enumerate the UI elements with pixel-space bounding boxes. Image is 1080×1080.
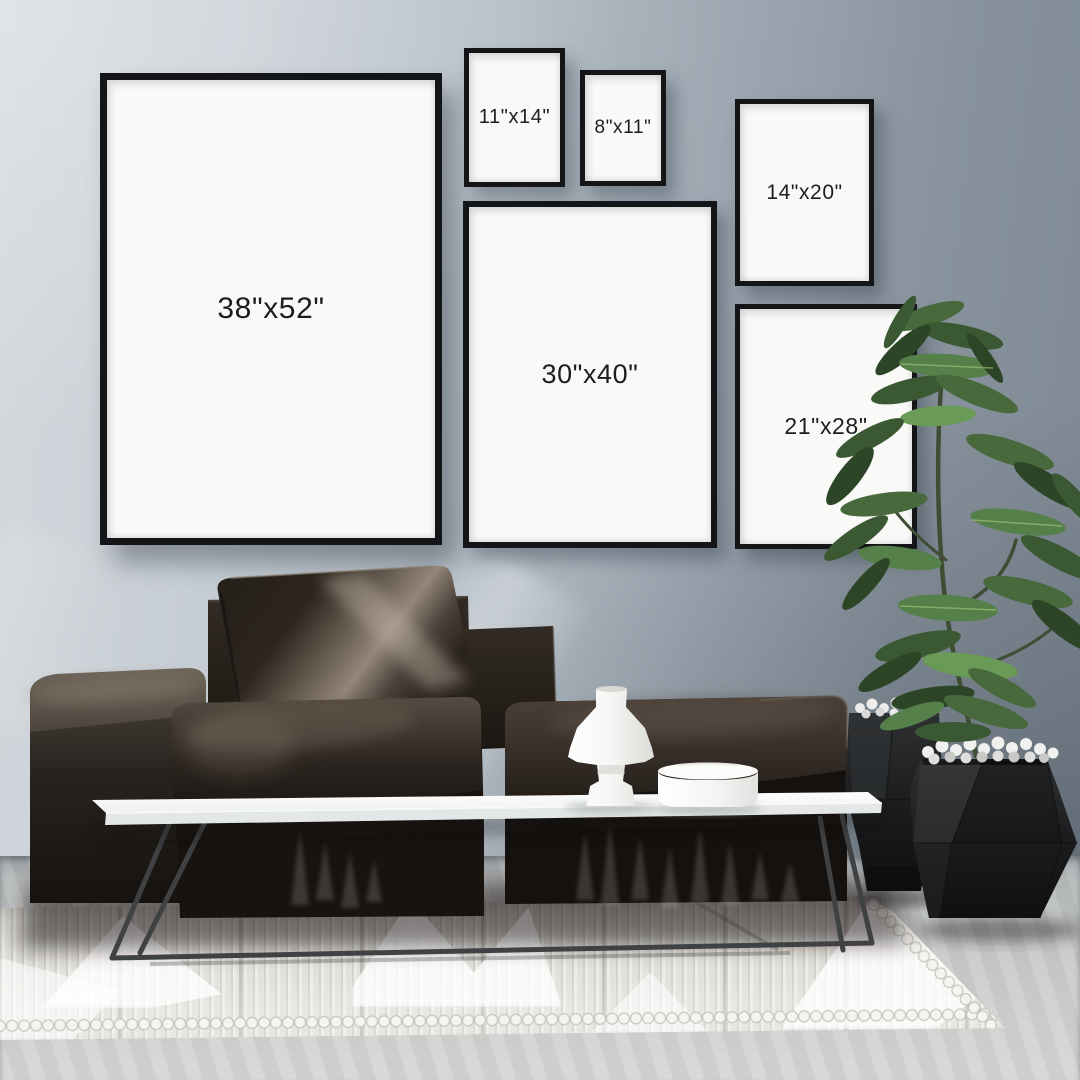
frame-paper: 8"x11" [585, 75, 661, 181]
frame-size-label: 21"x28" [784, 413, 867, 440]
frame-paper: 21"x28" [740, 309, 912, 544]
frame-14x20: 14"x20" [735, 99, 874, 286]
frame-size-label: 14"x20" [766, 181, 842, 205]
frame-size-label: 38"x52" [217, 292, 324, 326]
frame-paper: 30"x40" [469, 207, 711, 542]
frame-size-label: 11"x14" [479, 106, 550, 129]
living-room-scene: 38"x52" 11"x14" 8"x11" 14"x20" 30"x40" 2… [0, 0, 1080, 1080]
frame-30x40: 30"x40" [463, 201, 717, 548]
frame-size-label: 8"x11" [595, 117, 652, 139]
rug-pattern-zigzag [352, 899, 562, 1007]
frame-8x11: 8"x11" [580, 70, 666, 186]
frame-paper: 11"x14" [469, 53, 560, 182]
frame-38x52: 38"x52" [100, 73, 442, 545]
frame-paper: 38"x52" [107, 80, 435, 538]
frame-11x14: 11"x14" [464, 48, 565, 187]
frame-21x28: 21"x28" [735, 304, 917, 549]
frame-paper: 14"x20" [740, 104, 869, 281]
frame-size-label: 30"x40" [542, 359, 639, 390]
